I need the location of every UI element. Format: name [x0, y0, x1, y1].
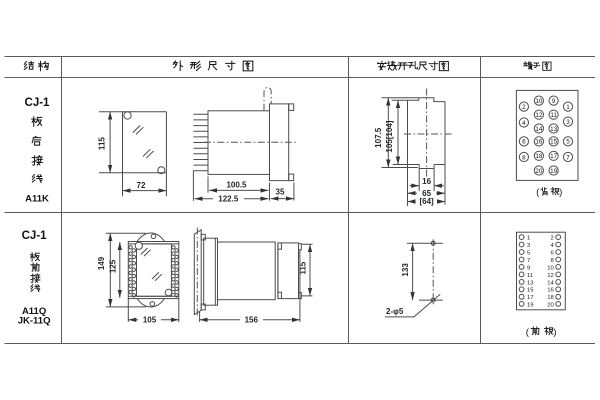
svg-text:18: 18: [535, 153, 543, 160]
svg-text:19: 19: [527, 302, 534, 308]
svg-text:15: 15: [550, 139, 558, 146]
svg-text:9: 9: [527, 265, 530, 271]
svg-text:35: 35: [276, 187, 285, 196]
svg-text:[64]: [64]: [419, 197, 434, 206]
svg-text:14: 14: [547, 280, 554, 286]
svg-text:72: 72: [137, 181, 146, 190]
svg-text:107.5: 107.5: [374, 127, 383, 148]
svg-text:1: 1: [527, 236, 530, 242]
svg-text:9: 9: [552, 98, 556, 105]
svg-text:10: 10: [535, 98, 543, 105]
svg-text:13: 13: [527, 280, 534, 286]
svg-text:16: 16: [422, 177, 431, 186]
svg-text:20: 20: [535, 168, 543, 175]
svg-text:2: 2: [522, 104, 526, 111]
svg-text:8: 8: [522, 154, 526, 161]
svg-text:CJ-1: CJ-1: [22, 230, 48, 242]
svg-text:19: 19: [550, 168, 558, 175]
svg-text:JK-11Q: JK-11Q: [18, 316, 51, 327]
svg-text:125: 125: [109, 259, 118, 273]
svg-text:11: 11: [550, 112, 557, 119]
svg-text:105[104]: 105[104]: [385, 120, 394, 152]
svg-text:17: 17: [550, 153, 558, 160]
svg-text:7: 7: [566, 154, 570, 161]
svg-text:17: 17: [527, 295, 534, 301]
svg-text:133: 133: [401, 263, 410, 277]
svg-text:156: 156: [245, 316, 259, 325]
svg-text:6: 6: [522, 139, 526, 146]
svg-text:105: 105: [143, 316, 157, 325]
svg-text:CJ-1: CJ-1: [25, 97, 51, 109]
svg-text:14: 14: [535, 126, 543, 133]
svg-text:12: 12: [547, 273, 554, 279]
svg-text:): ): [559, 187, 562, 197]
svg-text:13: 13: [550, 126, 558, 133]
svg-text:12: 12: [535, 112, 543, 119]
svg-text:1: 1: [566, 104, 570, 111]
svg-text:4: 4: [522, 120, 526, 127]
svg-text:18: 18: [547, 295, 554, 301]
svg-text:16: 16: [547, 288, 554, 294]
svg-text:100.5: 100.5: [226, 181, 247, 190]
svg-text:3: 3: [566, 119, 570, 126]
svg-text:122.5: 122.5: [218, 195, 239, 204]
svg-text:(: (: [536, 187, 539, 197]
svg-text:11: 11: [527, 273, 533, 279]
svg-text:16: 16: [535, 139, 543, 146]
svg-text:115: 115: [97, 137, 106, 150]
svg-text:2-φ5: 2-φ5: [386, 307, 404, 316]
svg-text:10: 10: [547, 265, 554, 271]
svg-text:A11K: A11K: [25, 193, 49, 204]
svg-text:149: 149: [97, 256, 106, 270]
svg-text:7: 7: [527, 258, 530, 264]
svg-text:2: 2: [551, 236, 554, 242]
svg-text:): ): [553, 327, 556, 338]
svg-text:15: 15: [527, 288, 534, 294]
svg-text:20: 20: [547, 302, 554, 308]
svg-text:5: 5: [566, 139, 570, 146]
